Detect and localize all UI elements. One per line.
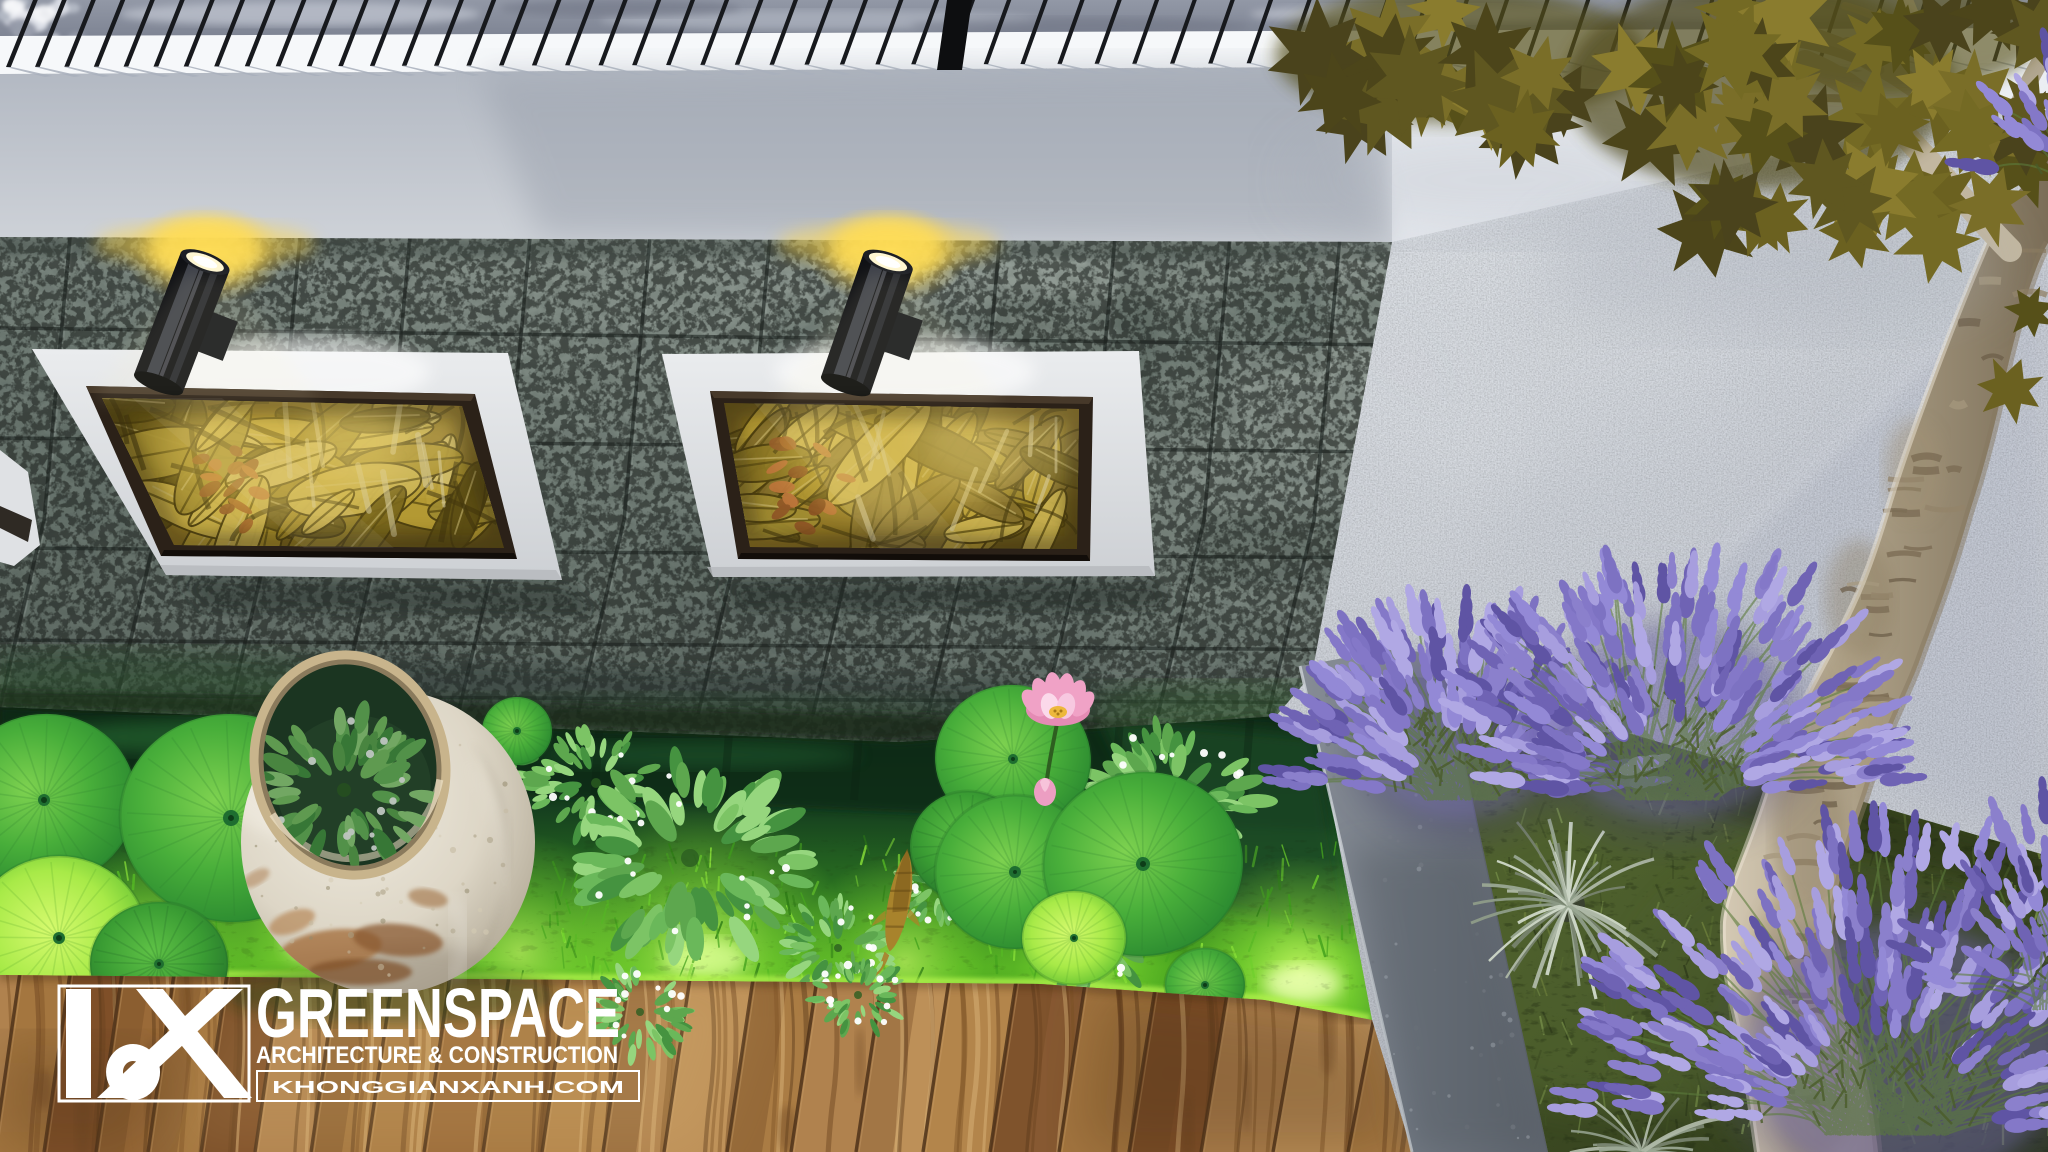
svg-text:GREENSPACE: GREENSPACE: [256, 974, 620, 1052]
svg-text:KHONGGIANXANH.COM: KHONGGIANXANH.COM: [272, 1077, 624, 1097]
svg-text:ARCHITECTURE & CONSTRUCTION: ARCHITECTURE & CONSTRUCTION: [256, 1042, 618, 1069]
